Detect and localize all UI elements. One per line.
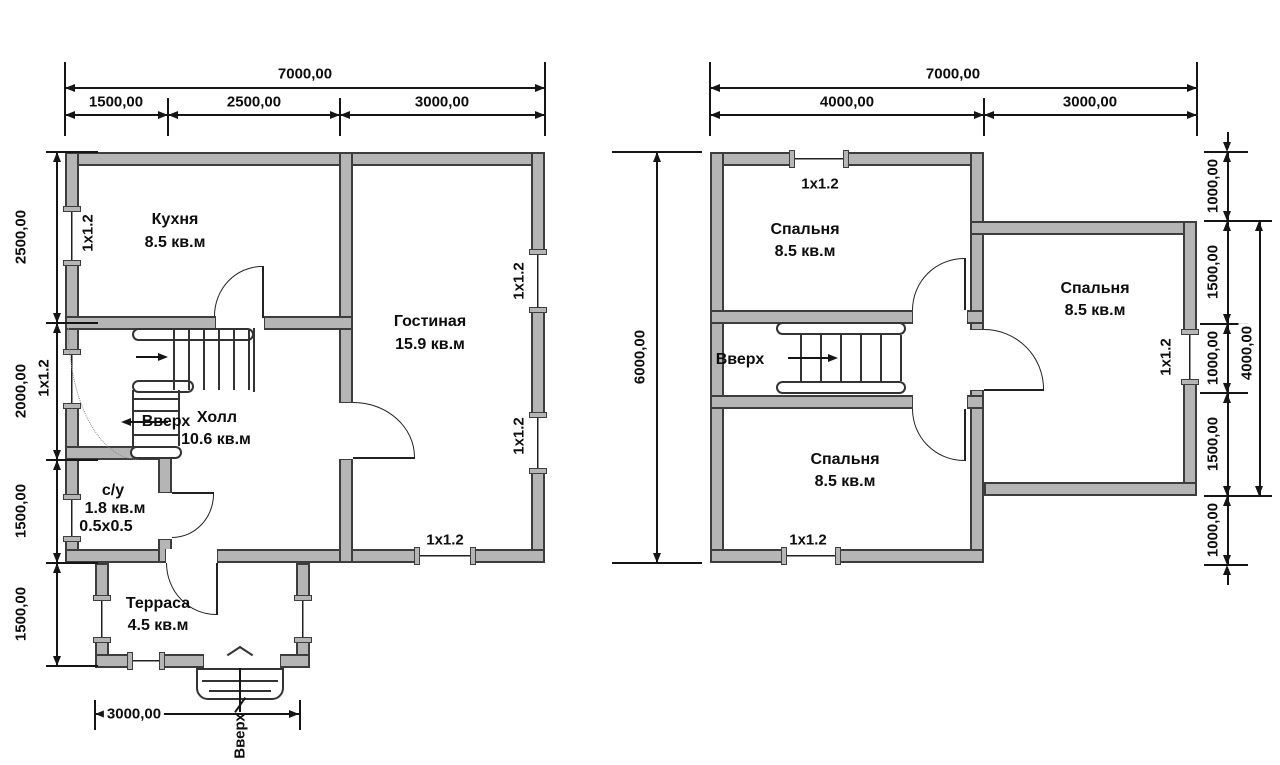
dim-label: 2000,00 — [13, 364, 30, 418]
dim-label: 3000,00 — [1063, 94, 1117, 111]
arrowhead — [1255, 486, 1263, 496]
dim-label: 1500,00 — [89, 94, 143, 111]
dim-label: 4000,00 — [820, 94, 874, 111]
arrowhead — [1187, 111, 1197, 119]
window-label: 1х1.2 — [511, 417, 528, 455]
terrace-railing — [296, 596, 310, 642]
entrance-up-label: Вверх — [232, 713, 249, 759]
dim-label-total-width-f2: 7000,00 — [926, 66, 980, 83]
stairs-up-label-f2: Вверх — [716, 351, 765, 369]
wall — [984, 482, 1197, 496]
dim-line — [65, 114, 545, 116]
door-leaf — [353, 457, 415, 459]
door-leaf — [984, 389, 1044, 391]
stair-direction-arrow — [788, 357, 828, 359]
stair-tread — [132, 434, 180, 436]
stair-tread — [132, 410, 180, 412]
room-size-bathroom: 0.5х0.5 — [79, 518, 132, 536]
window-label: 1х1.2 — [511, 262, 528, 300]
door-arc — [912, 258, 964, 310]
arrowhead — [53, 152, 61, 162]
arrowhead — [1223, 393, 1231, 403]
room-label-bedroom-right: Спальня — [1060, 280, 1129, 298]
arrowhead — [1223, 565, 1231, 575]
room-area-terrace: 4.5 кв.м — [128, 617, 189, 635]
arrowhead — [121, 418, 131, 426]
wall — [970, 221, 1197, 235]
window-living-bottom — [415, 549, 475, 563]
stair-stringer — [776, 381, 906, 394]
dim-label: 2500,00 — [13, 210, 30, 264]
door-arc — [353, 402, 415, 457]
dim-label-total-height-f2: 6000,00 — [632, 330, 649, 384]
stair-tread — [248, 330, 250, 390]
arrowhead — [653, 152, 661, 162]
dim-label: 1500,00 — [13, 484, 30, 538]
arrowhead — [828, 354, 838, 362]
room-area-bathroom: 1.8 кв.м — [85, 500, 146, 518]
stair-tread — [218, 330, 220, 390]
dim-line — [56, 152, 58, 666]
door-leaf — [262, 266, 264, 318]
arrowhead — [974, 111, 984, 119]
wall — [531, 152, 545, 563]
stair-tread — [900, 335, 902, 381]
stair-stringer — [132, 328, 254, 341]
stair-tread — [188, 330, 190, 390]
dim-label: 1000,00 — [1205, 328, 1222, 388]
dim-label: 1500,00 — [1205, 242, 1222, 302]
arrowhead — [158, 353, 168, 361]
window-label: 1х1.2 — [36, 359, 53, 397]
stair-stringer — [132, 380, 194, 393]
arrowhead — [653, 553, 661, 563]
stair-edge — [253, 328, 255, 392]
arrowhead — [158, 111, 168, 119]
arrowhead — [1223, 314, 1231, 324]
dim-label-terrace-width: 3000,00 — [104, 706, 164, 723]
arrowhead — [53, 656, 61, 666]
door-arc — [912, 409, 964, 461]
arrowhead — [710, 84, 720, 92]
room-area-bedroom-bottom: 8.5 кв.м — [815, 473, 876, 491]
extension-line — [709, 62, 711, 136]
window-living-right-2 — [531, 413, 545, 473]
floorplan-image: 7000,00 1500,00 2500,00 3000,00 2500,00 … — [0, 0, 1280, 765]
arrowhead — [1187, 84, 1197, 92]
dim-line — [656, 152, 658, 563]
room-label-living: Гостиная — [394, 313, 466, 331]
arrowhead — [53, 563, 61, 573]
window-label: 1х1.2 — [80, 214, 97, 252]
door-opening — [158, 492, 172, 540]
window-kitchen-left — [65, 207, 79, 265]
arrowhead — [53, 323, 61, 333]
arrowhead — [1223, 555, 1231, 565]
dim-label: 1000,00 — [1205, 500, 1222, 560]
stair-tread — [132, 398, 180, 400]
arrowhead — [289, 710, 299, 718]
window-label: 1х1.2 — [789, 532, 827, 549]
arrowhead — [65, 84, 75, 92]
dim-label-total-width-f1: 7000,00 — [278, 66, 332, 83]
extension-line — [544, 62, 546, 136]
wall — [65, 152, 545, 166]
window-living-right-1 — [531, 250, 545, 312]
arrowhead — [1223, 211, 1231, 221]
arrowhead — [535, 111, 545, 119]
door-opening — [970, 329, 984, 391]
room-label-bedroom-top: Спальня — [770, 221, 839, 239]
window-bedroom-right — [1183, 330, 1197, 384]
dim-label: 2500,00 — [227, 94, 281, 111]
extension-line — [64, 62, 66, 136]
window-label: 1х1.2 — [1158, 338, 1175, 376]
dim-line — [1259, 221, 1261, 496]
arrowhead — [1255, 221, 1263, 231]
door-opening — [165, 549, 218, 563]
arrowhead — [1223, 496, 1231, 506]
door-opening — [339, 402, 353, 460]
door-leaf — [964, 409, 966, 461]
extension-tick — [299, 700, 301, 730]
wall — [710, 549, 984, 563]
door-arc — [214, 266, 262, 316]
stair-tread — [203, 330, 205, 390]
stair-tread — [880, 335, 882, 381]
window-label: 1х1.2 — [426, 532, 464, 549]
arrowhead — [1223, 152, 1231, 162]
arrowhead — [53, 450, 61, 460]
dim-label: 1000,00 — [1205, 156, 1222, 216]
window-bedroom-top — [790, 152, 848, 166]
room-label-bedroom-bottom: Спальня — [810, 451, 879, 469]
door-opening — [912, 310, 968, 324]
door-arc — [172, 494, 214, 538]
extension-line — [1196, 62, 1198, 136]
door-leaf — [964, 258, 966, 310]
room-area-bedroom-right: 8.5 кв.м — [1065, 302, 1126, 320]
terrace-railing — [128, 654, 164, 668]
terrace-porch-opening — [203, 654, 281, 668]
stair-tread — [233, 330, 235, 390]
window-bedroom-bottom — [782, 549, 840, 563]
arrowhead — [53, 553, 61, 563]
window-bathroom-left — [65, 495, 79, 541]
stair-tread — [860, 335, 862, 381]
room-area-hall: 10.6 кв.м — [181, 431, 251, 449]
wall — [339, 152, 353, 563]
arrowhead — [1223, 142, 1231, 152]
dim-label: 3000,00 — [415, 94, 469, 111]
room-label-terrace: Терраса — [126, 595, 190, 613]
door-arc — [984, 329, 1044, 389]
room-label-hall: Холл — [197, 409, 237, 427]
stair-tread — [173, 330, 175, 390]
dim-label-right-inner-total: 4000,00 — [1239, 323, 1256, 383]
dim-label: 1500,00 — [13, 587, 30, 641]
room-area-kitchen: 8.5 кв.м — [145, 234, 206, 252]
room-label-kitchen: Кухня — [152, 211, 199, 229]
arrowhead — [53, 313, 61, 323]
stair-stringer — [776, 322, 906, 335]
arrowhead — [1223, 486, 1231, 496]
arrowhead — [65, 111, 75, 119]
arrowhead — [1223, 383, 1231, 393]
arrowhead — [330, 111, 340, 119]
arrowhead — [1223, 324, 1231, 334]
arrowhead — [1223, 221, 1231, 231]
window-label: 1х1.2 — [801, 176, 839, 193]
dim-label: 1500,00 — [1205, 414, 1222, 474]
room-label-bathroom: с/у — [102, 482, 124, 500]
room-area-living: 15.9 кв.м — [395, 336, 465, 354]
arrowhead — [984, 111, 994, 119]
dim-line — [710, 87, 1197, 89]
door-opening — [912, 395, 968, 409]
arrowhead — [340, 111, 350, 119]
door-leaf — [216, 563, 218, 615]
arrowhead — [535, 84, 545, 92]
room-area-bedroom-top: 8.5 кв.м — [775, 243, 836, 261]
dim-line — [710, 114, 1197, 116]
stairs-up-label-f1: Вверх — [142, 413, 191, 431]
arrowhead — [168, 111, 178, 119]
dim-line — [65, 87, 545, 89]
stair-tread — [840, 335, 842, 381]
arrowhead — [710, 111, 720, 119]
terrace-railing — [95, 596, 109, 642]
arrowhead — [53, 460, 61, 470]
